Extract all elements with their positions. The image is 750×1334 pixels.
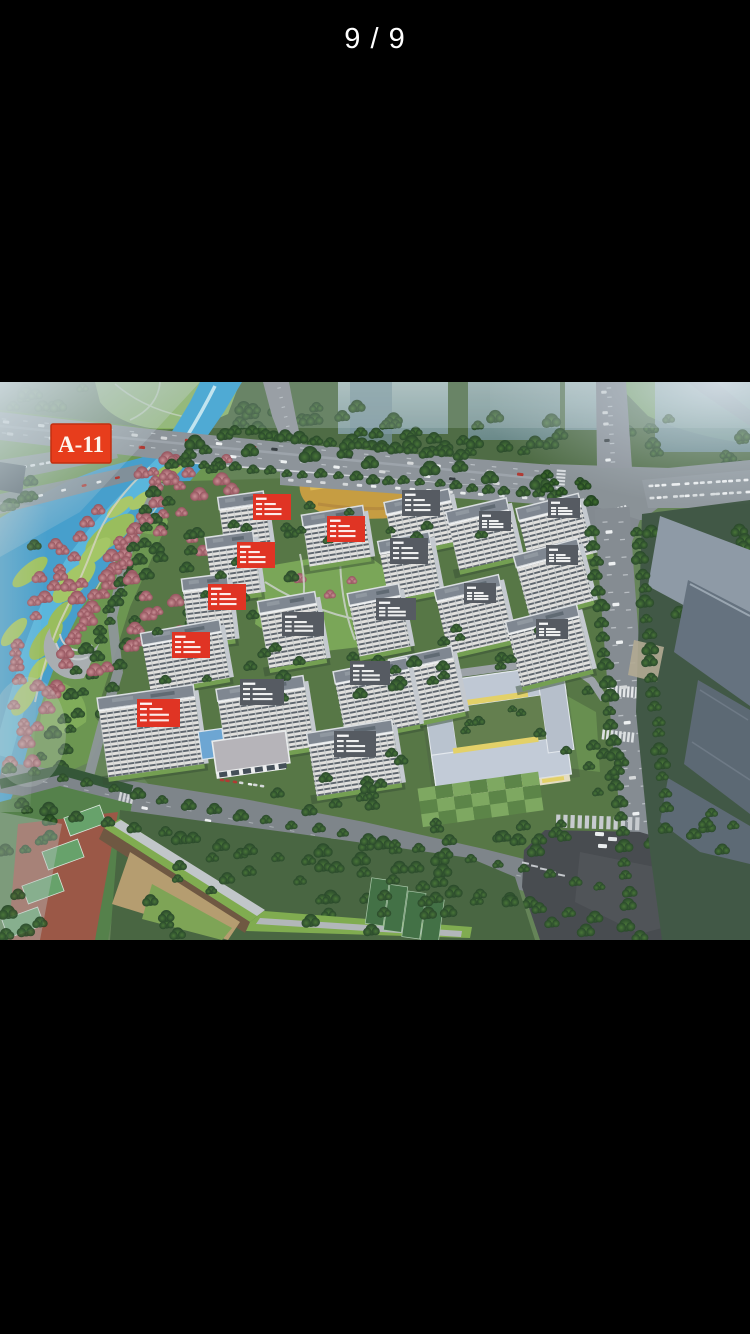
svg-text:A-11: A-11: [58, 432, 104, 457]
